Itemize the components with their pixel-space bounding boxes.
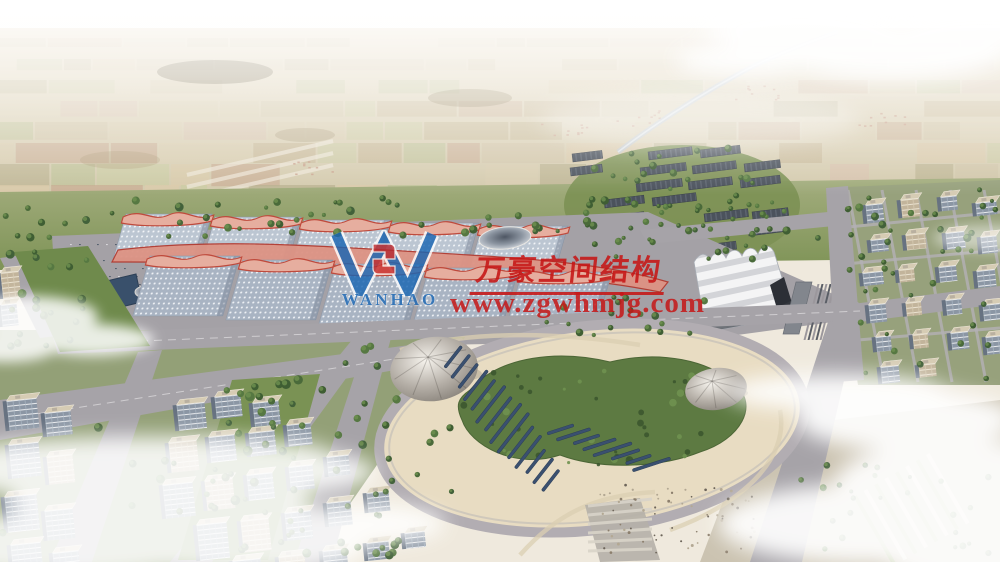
aerial-rendering: WANHAO 万豪空间结构 www.zgwhmjg.com: [0, 0, 1000, 562]
scene-illustration: [0, 0, 1000, 562]
